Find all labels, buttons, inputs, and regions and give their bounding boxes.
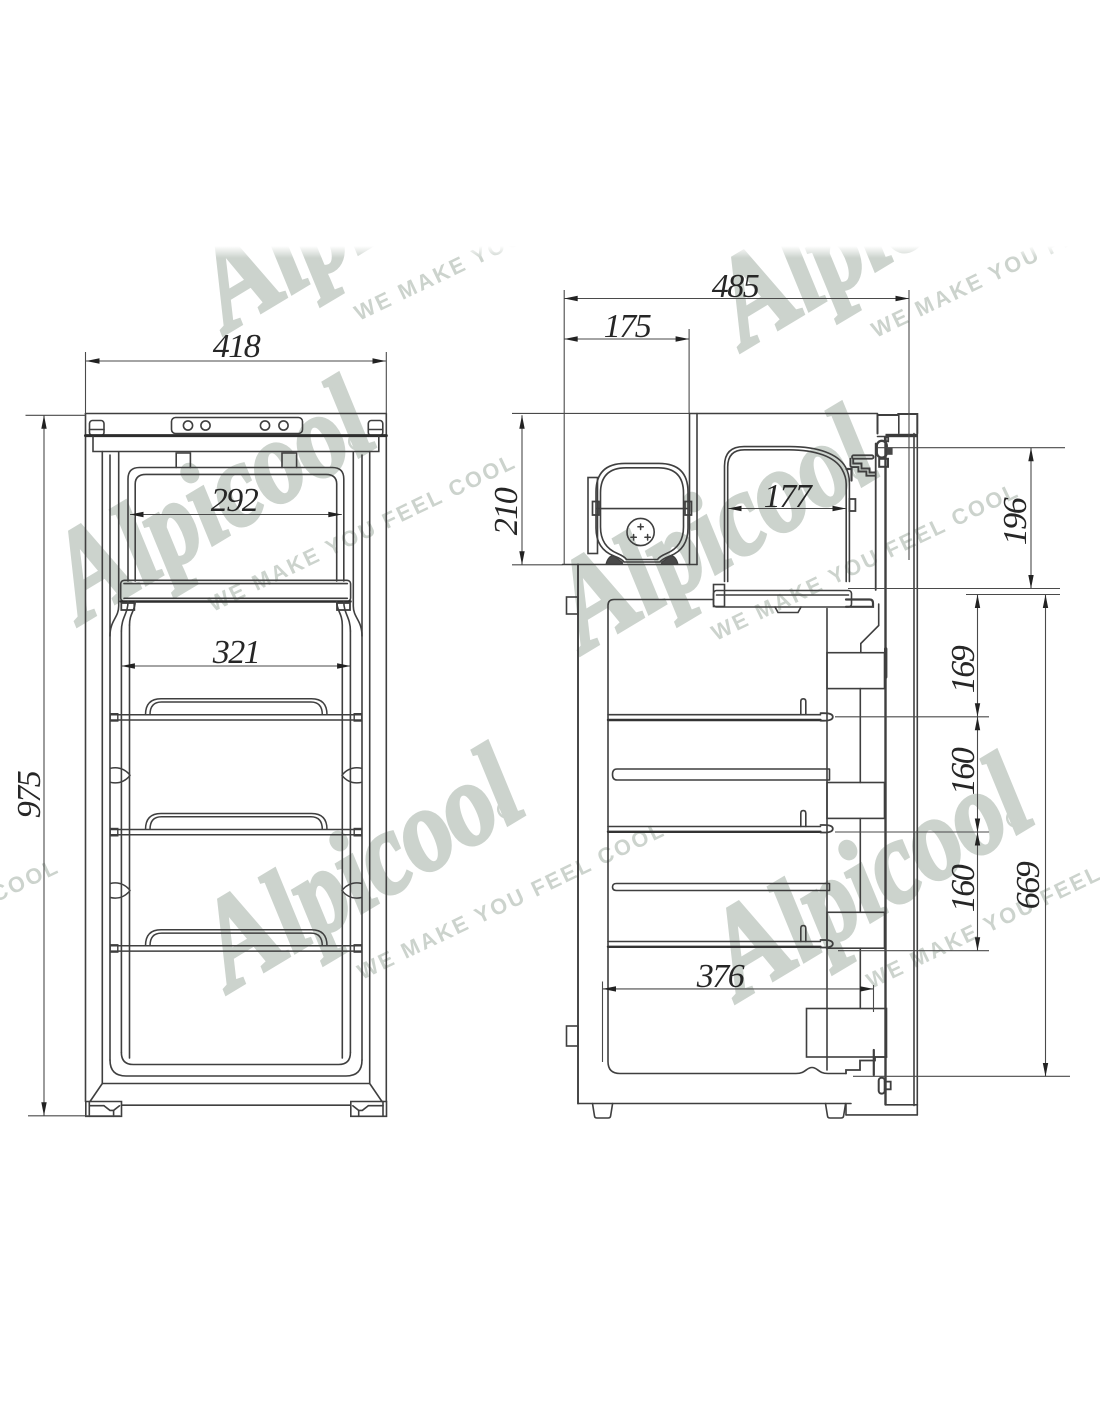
svg-text:321: 321 [212,634,260,671]
svg-text:975: 975 [11,771,48,818]
svg-text:669: 669 [1010,861,1047,909]
svg-text:196: 196 [997,497,1034,545]
svg-text:418: 418 [213,328,261,365]
svg-text:160: 160 [945,747,982,795]
svg-text:160: 160 [945,864,982,912]
svg-text:177: 177 [764,478,814,515]
svg-text:376: 376 [696,958,745,995]
svg-text:485: 485 [712,268,759,305]
svg-text:210: 210 [488,487,525,535]
svg-text:292: 292 [211,482,259,519]
svg-text:169: 169 [945,645,982,693]
svg-text:175: 175 [604,308,651,345]
